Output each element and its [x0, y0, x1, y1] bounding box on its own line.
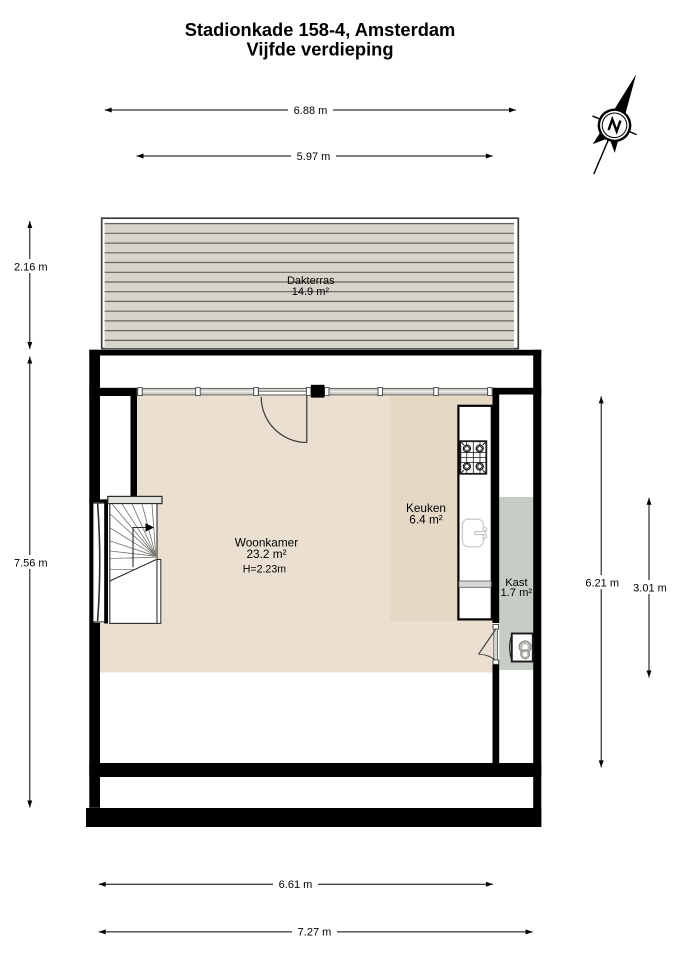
svg-text:7.56 m: 7.56 m	[14, 557, 48, 569]
svg-text:14.9 m²: 14.9 m²	[292, 286, 330, 298]
svg-text:3.01 m: 3.01 m	[633, 582, 667, 594]
svg-text:2.16 m: 2.16 m	[14, 261, 48, 273]
svg-text:7.27 m: 7.27 m	[298, 927, 332, 939]
svg-text:H=2.23m: H=2.23m	[243, 564, 286, 576]
svg-text:Stadionkade 158-4, Amsterdam: Stadionkade 158-4, Amsterdam	[185, 19, 456, 40]
svg-text:23.2 m²: 23.2 m²	[247, 547, 287, 561]
svg-text:6.61 m: 6.61 m	[279, 879, 313, 891]
svg-text:6.88 m: 6.88 m	[294, 105, 328, 117]
svg-text:1.7 m²: 1.7 m²	[500, 587, 532, 599]
svg-text:5.97 m: 5.97 m	[297, 151, 331, 163]
svg-text:6.21 m: 6.21 m	[585, 577, 619, 589]
svg-text:Vijfde verdieping: Vijfde verdieping	[247, 39, 394, 60]
svg-text:Dakterras: Dakterras	[287, 275, 335, 287]
svg-text:6.4 m²: 6.4 m²	[409, 512, 443, 526]
